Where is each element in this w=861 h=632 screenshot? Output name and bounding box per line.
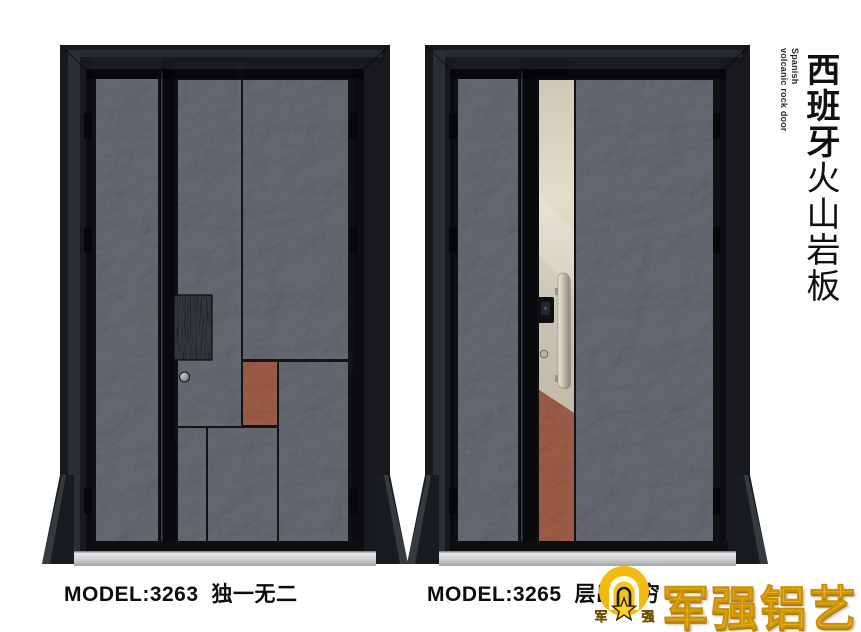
rust-strip-section (539, 390, 574, 542)
hinge (449, 488, 457, 514)
sill-edge (74, 551, 376, 553)
title-cn-bold: 西班牙 (801, 52, 839, 160)
hinge (349, 227, 357, 253)
page-title-vertical: 西班牙火山岩板 (801, 52, 838, 304)
page-canvas: 西班牙火山岩板 Spanish volcanic rock door MODEL… (0, 0, 861, 632)
brand-badge: 军 强 (588, 560, 662, 632)
subtitle-line-1: Spanish (790, 48, 801, 132)
hinge (449, 113, 457, 139)
lock-cylinder (180, 372, 190, 382)
small-leaf-panel (96, 79, 158, 541)
title-cn-regular: 火山岩板 (801, 160, 839, 304)
page-subtitle-rotated: Spanish volcanic rock door (779, 48, 800, 132)
door-3265-image (425, 45, 750, 568)
stile-highlight (521, 71, 523, 559)
small-leaf-panel (458, 79, 518, 541)
top-shadow (86, 69, 364, 79)
door-handle (558, 273, 569, 388)
subtitle-line-2: volcanic rock door (779, 48, 790, 132)
top-shadow (450, 69, 726, 79)
model-number: MODEL:3263 (64, 583, 199, 606)
leaf-panel (279, 362, 348, 542)
leaf-panel (178, 428, 206, 542)
hinge (713, 488, 721, 514)
model-number: MODEL:3265 (427, 583, 562, 606)
badge-char-left: 军 (594, 609, 607, 624)
sill-edge (439, 551, 736, 553)
model-caption-3263: MODEL:3263独一无二 (64, 578, 298, 608)
leaf-panel (243, 80, 348, 359)
hinge (84, 488, 92, 514)
hinge (84, 113, 92, 139)
lock-plate (174, 295, 212, 360)
hinge (349, 113, 357, 139)
stile-highlight (161, 71, 163, 559)
product-name: 独一无二 (212, 583, 298, 606)
frame-top-face (433, 50, 742, 57)
brand-logo-text: 军强铝艺 (662, 570, 858, 632)
hinge (349, 488, 357, 514)
frame-top-face (68, 50, 382, 57)
main-leaf-panel (576, 80, 713, 542)
rust-accent-panel (243, 362, 277, 425)
hinge (449, 227, 457, 253)
leaf-panel (208, 428, 277, 542)
badge-char-right: 强 (641, 609, 654, 624)
lock-cylinder (540, 350, 548, 358)
smart-lock-dot (544, 307, 547, 310)
hinge (713, 113, 721, 139)
threshold-sill (74, 551, 376, 566)
hinge (84, 227, 92, 253)
hinge (713, 227, 721, 253)
door-3263-image (60, 45, 390, 568)
